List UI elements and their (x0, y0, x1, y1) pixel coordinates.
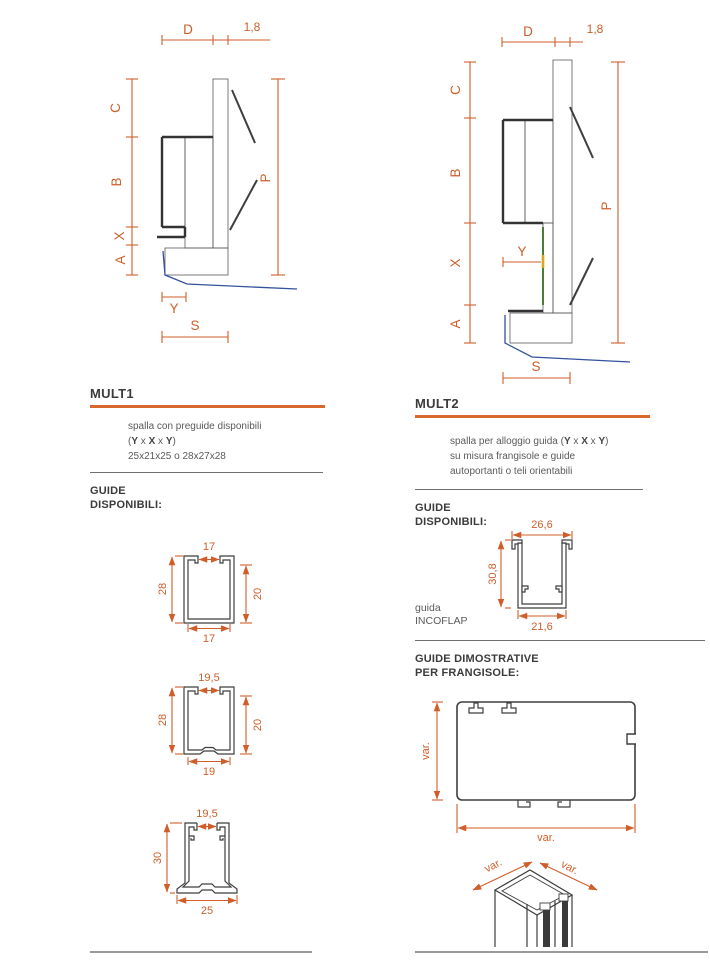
iso-wall-dark-1 (543, 909, 550, 947)
mult1-dimensions: D 1,8 C B X A P Y S (108, 20, 285, 343)
mult1-title: MULT1 (90, 386, 134, 401)
profile2-left-dim: 28 (157, 714, 169, 726)
guide-profile-2: 19,5 28 20 19 (150, 667, 270, 782)
wall-inner-layer (525, 120, 553, 223)
footer-rule-right (415, 951, 708, 953)
profile2-right-dim: 20 (252, 719, 264, 731)
dim-label-p: P (599, 201, 614, 210)
dim-label-x: X (448, 258, 463, 267)
mult1-title-rule (90, 405, 325, 408)
iso-hook-detail-2 (559, 894, 568, 901)
dim-label-coat: 1,8 (244, 20, 261, 34)
dim-label-a: A (113, 255, 128, 264)
side-notch (627, 734, 636, 744)
sill-line (163, 251, 297, 289)
iso-wall-dark-2 (562, 900, 568, 947)
profile2-bottom-dim: 19 (203, 766, 215, 778)
profile-outline (184, 687, 234, 754)
profile-flange-right (556, 586, 562, 592)
dim-label-b: B (109, 177, 124, 186)
profile2-top-dim: 19,5 (198, 672, 219, 684)
dim-label-c: C (448, 85, 463, 95)
wall-inner-layer (185, 137, 213, 248)
mult2-title-rule (415, 415, 650, 418)
profile-inner-outline (183, 823, 231, 887)
isometric-profile-sketch: var. var. (440, 843, 640, 948)
mult1-wall-section (157, 79, 297, 289)
dim-label-b: B (448, 168, 463, 177)
mult2-title: MULT2 (415, 396, 459, 411)
wall-recess-column (543, 223, 553, 313)
mult1-section-diagram: D 1,8 C B X A P Y S (85, 10, 335, 355)
guide-profile-3: 19,5 30 25 (145, 803, 275, 925)
dim-label-d: D (183, 22, 193, 37)
incoflap-top-dim: 26,6 (531, 519, 552, 531)
wall-outer-layer (503, 120, 525, 223)
bottom-clip-2 (558, 800, 570, 807)
mult2-guides-heading: GUIDE DISPONIBILI: (415, 501, 487, 529)
frangisole-height-dim: var. (420, 742, 432, 760)
profile-flange-left (522, 586, 528, 592)
sill-slab (510, 313, 572, 343)
iso-left-dim: var. (483, 857, 504, 876)
wall-outline (503, 120, 553, 311)
incoflap-left-dim: 30,8 (487, 563, 499, 584)
frangisole-profile: var. var. (412, 690, 652, 845)
mult1-desc-formula: (Y x X x Y) (128, 434, 328, 449)
dimostrative-heading: GUIDE DIMOSTRATIVE PER FRANGISOLE: (415, 652, 539, 680)
profile-outline (518, 543, 566, 608)
profile3-left-dim: 30 (152, 852, 164, 864)
dim-label-a: A (448, 319, 463, 328)
mult1-desc-line1: spalla con preguide disponibili (128, 419, 328, 434)
mult2-divider-1 (415, 489, 643, 490)
plaster-coat (553, 60, 572, 313)
mult2-dimensions: D 1,8 C B X A P Y S (448, 22, 625, 384)
dim-label-coat: 1,8 (587, 22, 604, 36)
profile3-bottom-dim: 25 (201, 905, 213, 917)
profile3-top-dim: 19,5 (196, 808, 217, 820)
mult1-guides-heading: GUIDE DISPONIBILI: (90, 484, 162, 512)
profile1-left-dim: 28 (157, 583, 169, 595)
dim-label-y: Y (169, 301, 178, 316)
wall-outer-layer (162, 137, 185, 227)
mult2-desc-line1: spalla per alloggio guida (Y x X x Y) (450, 434, 690, 449)
profile-outer-outline (177, 823, 237, 893)
sill-line (505, 315, 630, 362)
mult2-desc-line2: su misura frangisole e guide (450, 449, 690, 464)
dim-label-c: C (108, 103, 123, 113)
dim-label-s: S (531, 359, 540, 374)
dim-label-d: D (523, 24, 533, 39)
dim-label-s: S (190, 318, 199, 333)
incoflap-profile: 26,6 30,8 21,6 (486, 518, 592, 636)
dim-label-y: Y (517, 244, 526, 259)
mult1-divider (90, 472, 323, 473)
mult2-divider-2 (415, 640, 705, 641)
bottom-clip-1 (518, 800, 530, 807)
mult2-section-diagram: D 1,8 C B X A P Y S (405, 10, 705, 385)
plaster-coat (213, 79, 228, 248)
mult1-description: spalla con preguide disponibili (Y x X x… (128, 419, 328, 464)
iso-hook-detail-1 (540, 903, 550, 910)
dim-label-p: P (258, 173, 273, 182)
mult2-description: spalla per alloggio guida (Y x X x Y) su… (450, 434, 690, 479)
mult2-desc-line3: autoportanti o teli orientabili (450, 464, 690, 479)
sill-slab (165, 248, 228, 275)
guide-profile-1: 17 28 20 17 (150, 536, 270, 648)
shutter-slats (230, 90, 257, 230)
mult1-desc-line3: 25x21x25 o 28x27x28 (128, 449, 328, 464)
shutter-slats (570, 107, 593, 305)
profile-hook-detail (189, 836, 225, 840)
footer-rule-left (90, 951, 312, 953)
profile1-right-dim: 20 (252, 588, 264, 600)
dim-label-x: X (112, 231, 127, 240)
profile-outline (184, 556, 234, 623)
profile1-top-dim: 17 (203, 541, 215, 553)
iso-right-dim: var. (559, 859, 580, 878)
profile-body (457, 702, 635, 800)
profile1-bottom-dim: 17 (203, 633, 215, 645)
incoflap-bottom-dim: 21,6 (531, 621, 552, 633)
incoflap-label: guida INCOFLAP (415, 602, 468, 628)
catalog-page: D 1,8 C B X A P Y S (0, 0, 710, 968)
